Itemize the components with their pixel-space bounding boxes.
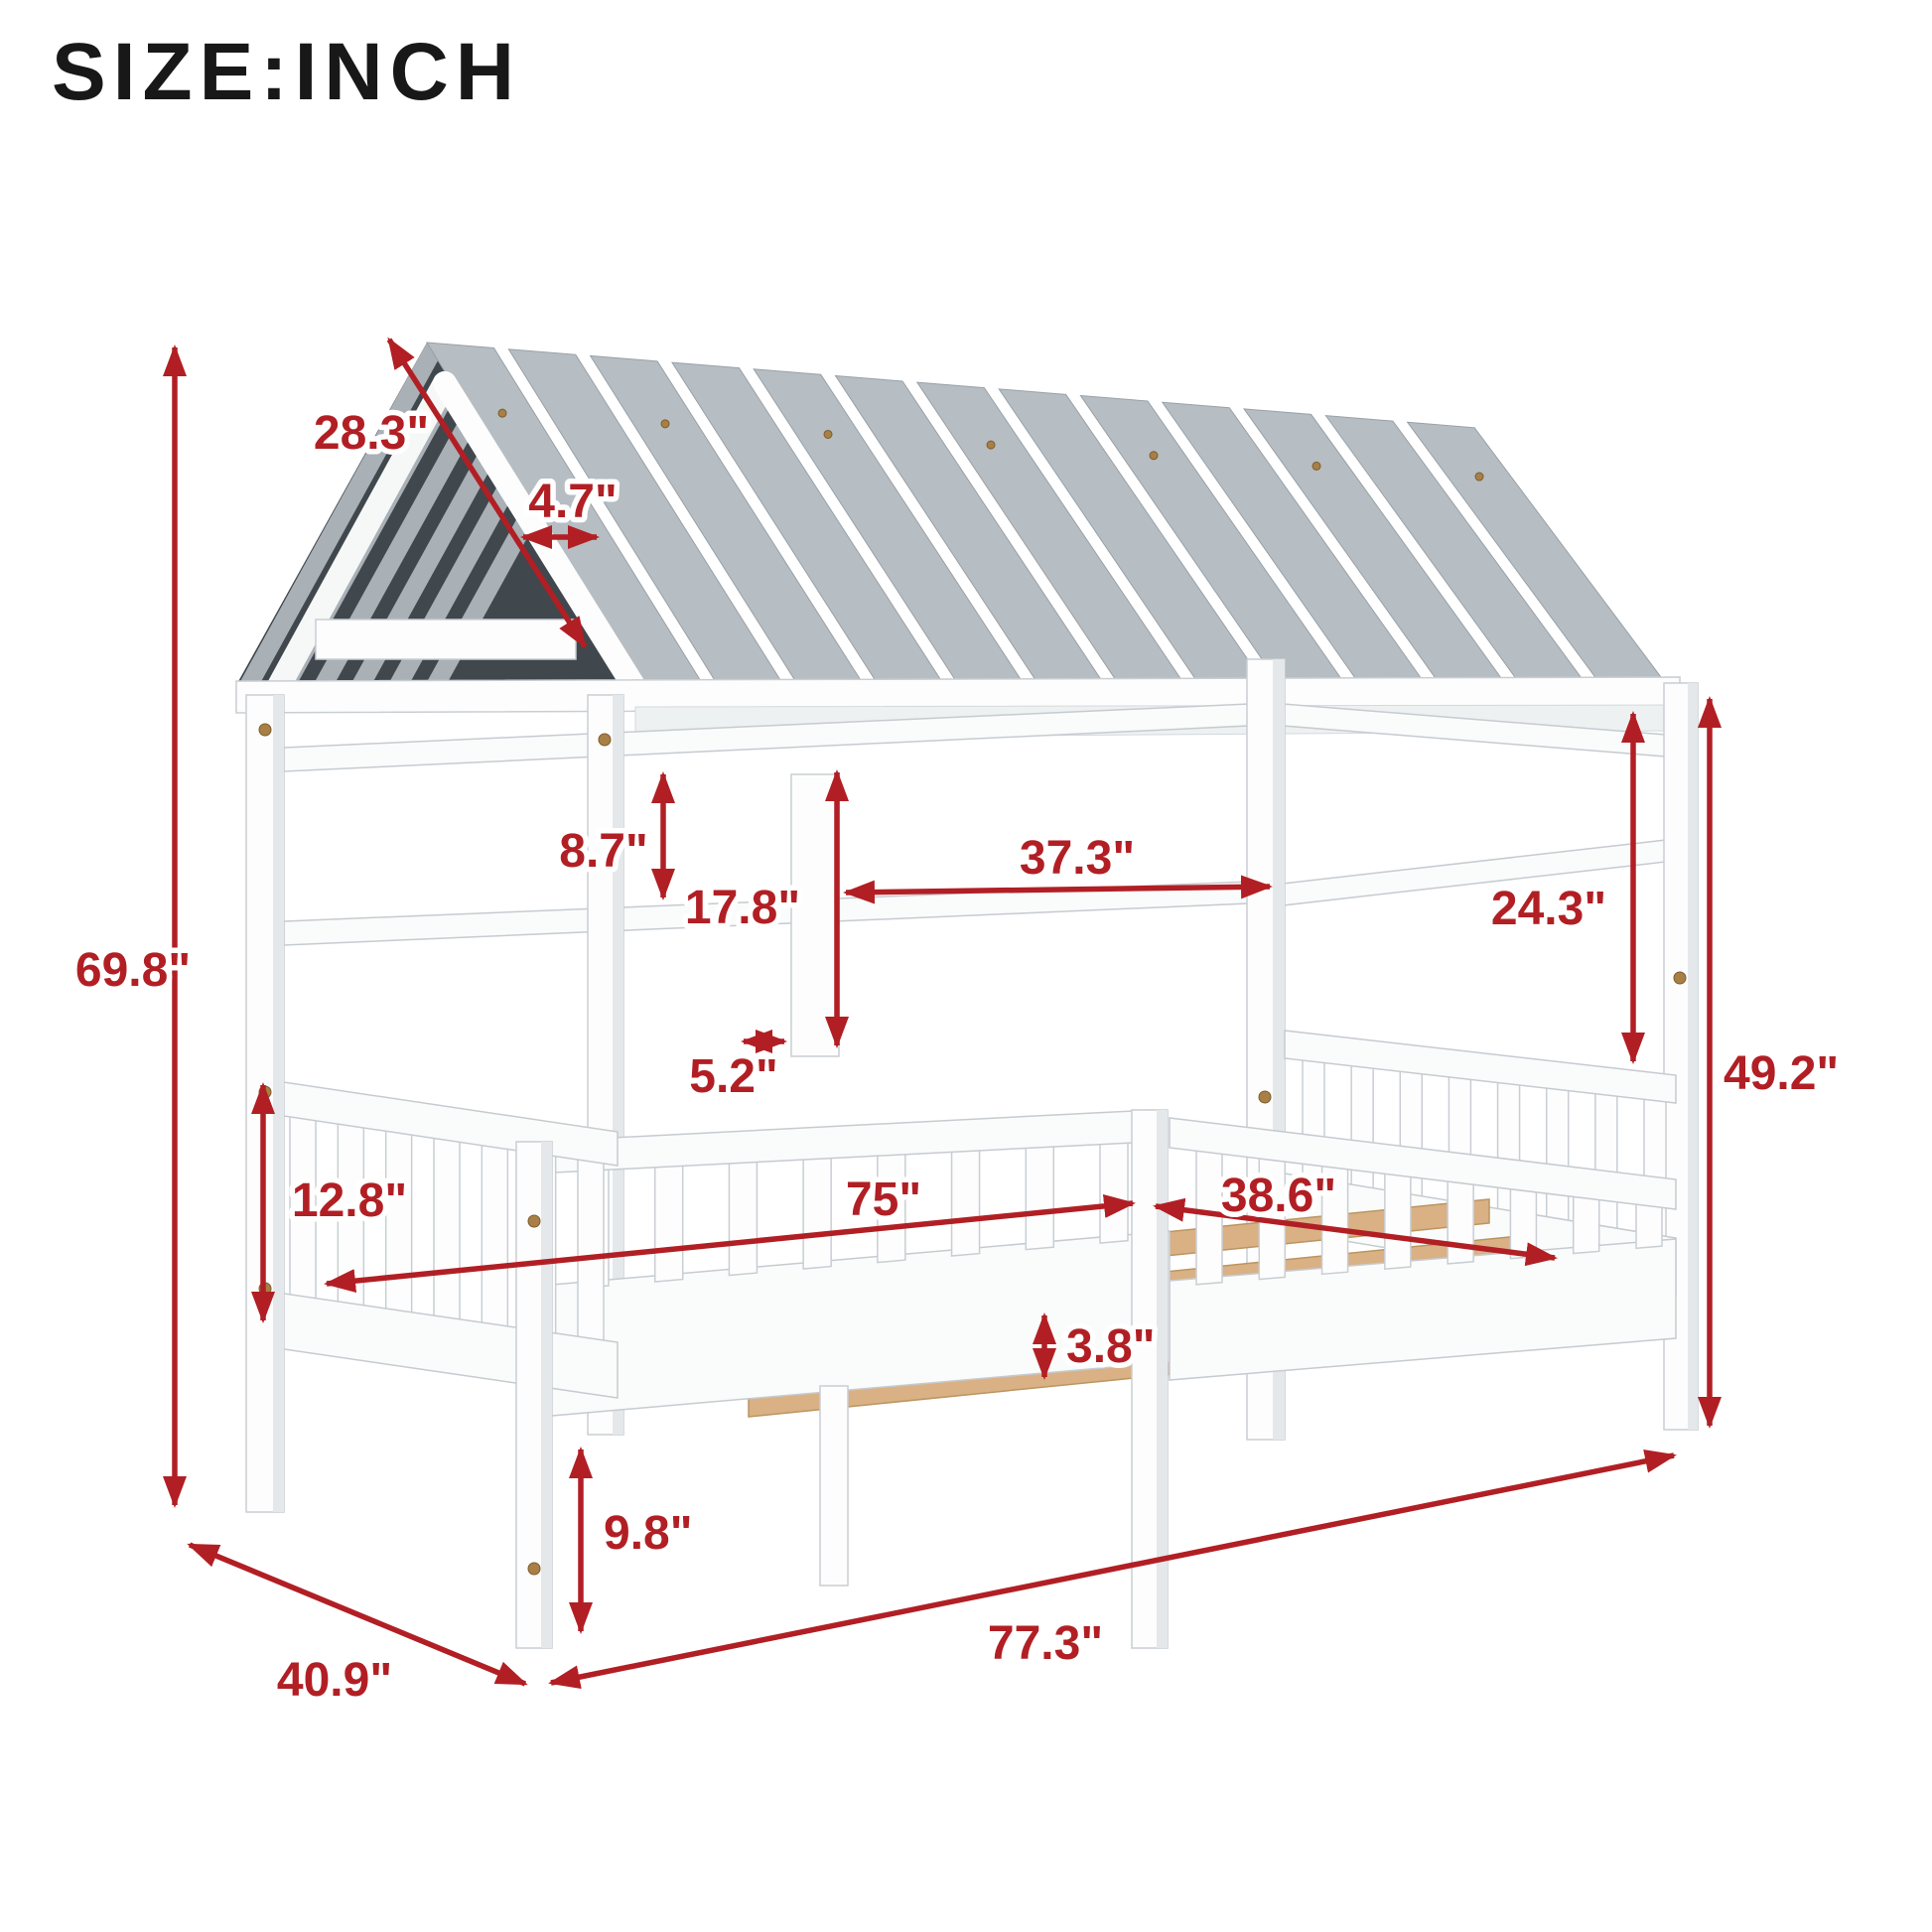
fence-spindle bbox=[1100, 1137, 1128, 1243]
dim-label-sleeping-width: 38.6" bbox=[1221, 1170, 1336, 1222]
dim-label-overall-height: 69.8" bbox=[75, 944, 191, 997]
dim-label-roof-slat-width: 4.7" bbox=[528, 476, 617, 528]
fence-spindle bbox=[1351, 1060, 1373, 1194]
fence-spindle bbox=[578, 1154, 604, 1346]
fence-spindle bbox=[482, 1140, 507, 1332]
dim-label-guardrail-height: 12.8" bbox=[292, 1174, 407, 1227]
fence-spindle bbox=[1026, 1141, 1053, 1249]
leg-mid bbox=[820, 1386, 848, 1586]
dim-arrow-overall-length bbox=[551, 1455, 1674, 1683]
fence-spindle bbox=[655, 1160, 683, 1282]
front-bed-rail-right bbox=[1170, 1239, 1676, 1380]
roof-screw bbox=[1150, 452, 1158, 460]
dim-label-post-height-right: 49.2" bbox=[1724, 1047, 1839, 1100]
gable-collar-beam bbox=[316, 620, 576, 659]
dim-label-eave-to-guardrail: 24.3" bbox=[1491, 883, 1606, 935]
fence-spindle bbox=[1510, 1183, 1536, 1259]
dim-label-shelf-length: 37.3" bbox=[1020, 832, 1135, 885]
size-diagram-page: SIZE:INCH bbox=[0, 0, 1932, 1932]
fence-spindle bbox=[1385, 1168, 1411, 1269]
fence-spindle bbox=[1547, 1082, 1569, 1226]
dim-label-overall-width: 40.9" bbox=[277, 1654, 392, 1707]
dim-label-overall-length: 77.3" bbox=[988, 1617, 1103, 1670]
fence-spindle bbox=[434, 1133, 460, 1325]
fence-spindle bbox=[803, 1153, 831, 1269]
leg-front-divider bbox=[1132, 1110, 1168, 1648]
roof-screw bbox=[661, 420, 669, 428]
bed-illustration bbox=[236, 343, 1698, 1648]
roof-screw bbox=[824, 430, 832, 438]
house-bed-dimension-diagram: 28.3" 4.7" 69.8" 8.7" 17.8" 37.3" 24.3" … bbox=[0, 0, 1932, 1932]
roof-screw bbox=[1312, 462, 1320, 470]
dim-label-roof-slope-length: 28.3" bbox=[314, 407, 429, 460]
fence-top-rail bbox=[1285, 1031, 1676, 1103]
roof-screw bbox=[1475, 473, 1483, 481]
fence-top-rail bbox=[536, 1110, 1152, 1173]
dim-label-sleeping-length: 75" bbox=[846, 1173, 921, 1226]
dim-label-shelf-board-width: 5.2" bbox=[689, 1050, 777, 1103]
fence-spindle bbox=[729, 1157, 757, 1276]
dim-label-under-bed-clearance: 9.8" bbox=[604, 1507, 692, 1560]
fence-spindle bbox=[952, 1145, 980, 1256]
dim-label-wall-rail-spacing: 8.7" bbox=[559, 825, 647, 878]
roof-screw bbox=[987, 441, 995, 449]
wall-rails bbox=[284, 704, 1666, 1056]
dim-label-side-rail-thickness: 3.8" bbox=[1066, 1320, 1155, 1373]
dim-label-canopy-to-guardrail: 17.8" bbox=[685, 882, 800, 934]
fence-spindle bbox=[1448, 1175, 1473, 1264]
roof-screw bbox=[498, 409, 506, 417]
fence-spindle bbox=[1574, 1190, 1599, 1253]
head-guardrail bbox=[250, 1077, 618, 1398]
